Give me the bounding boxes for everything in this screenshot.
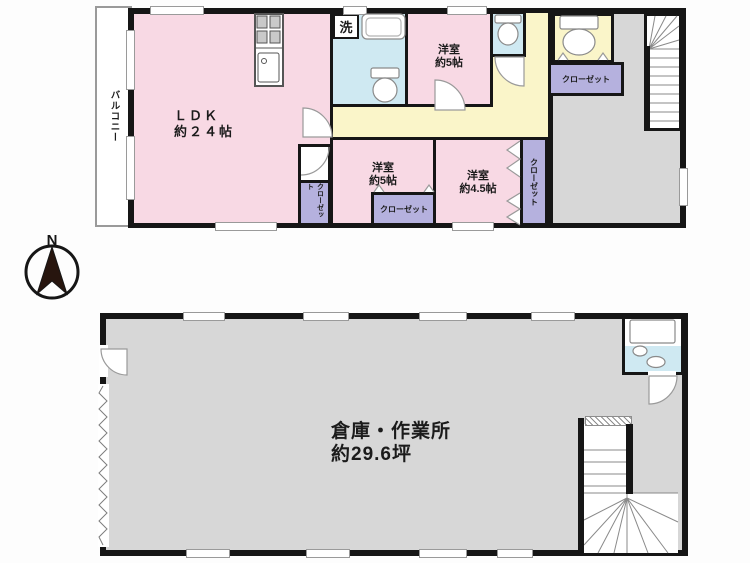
warehouse-washroom xyxy=(622,316,684,375)
closet-ldk-door xyxy=(298,144,331,183)
closet-mid: クローゼット xyxy=(371,192,437,226)
closet-ldk-label: クローゼット xyxy=(305,183,325,223)
window-mark xyxy=(452,222,494,231)
stairs-lower-run xyxy=(584,424,627,553)
floor-plan-image: バルコニー ＬＤＫ 約２４帖 洗 洋室 約5帖 洋室 約5帖 クローゼット xyxy=(0,0,750,563)
stairs-upper xyxy=(644,13,682,131)
window-mark xyxy=(447,6,487,15)
window-mark xyxy=(419,549,467,558)
room-bedroom-top-label: 洋室 約5帖 xyxy=(408,44,490,70)
window-mark xyxy=(183,312,225,321)
window-mark xyxy=(679,168,688,206)
window-mark xyxy=(150,6,204,15)
balcony-label: バルコニー xyxy=(107,90,121,143)
room-bedroom-small-label: 洋室 約4.5帖 xyxy=(436,170,520,196)
warehouse-washroom-wet-area xyxy=(625,346,681,372)
door-opening xyxy=(99,345,108,377)
warehouse-label: 倉庫・作業所 約29.6坪 xyxy=(331,421,451,467)
window-mark xyxy=(306,549,350,558)
room-ldk-label: ＬＤＫ 約２４帖 xyxy=(174,108,234,139)
closet-entry-label: クローゼット xyxy=(562,74,610,85)
shutter-strip xyxy=(98,384,109,547)
laundry-label: 洗 xyxy=(339,17,352,36)
window-mark xyxy=(531,312,575,321)
hatch-partition xyxy=(585,416,632,426)
room-bedroom-top: 洋室 約5帖 xyxy=(405,11,493,107)
laundry-box: 洗 xyxy=(333,14,359,39)
closet-entry: クローゼット xyxy=(548,62,624,96)
window-mark xyxy=(215,222,277,231)
closet-mid-label: クローゼット xyxy=(380,204,428,215)
compass-north-label: N xyxy=(47,232,58,249)
room-bedroom-mid-label: 洋室 約5帖 xyxy=(333,162,433,188)
room-bedroom-small: 洋室 約4.5帖 xyxy=(433,137,523,226)
compass-icon: N xyxy=(26,232,78,298)
window-mark xyxy=(186,549,230,558)
window-mark xyxy=(303,312,349,321)
door-opening xyxy=(648,371,676,377)
window-mark xyxy=(126,136,135,200)
closet-side: クローゼット xyxy=(520,137,548,226)
window-mark xyxy=(126,30,135,90)
window-mark xyxy=(497,549,533,558)
kitchen-counter xyxy=(254,13,284,87)
closet-side-label: クローゼット xyxy=(529,158,540,206)
window-mark xyxy=(419,312,467,321)
closet-ldk: クローゼット xyxy=(298,180,331,226)
entry-toilet-room xyxy=(552,13,614,63)
toilet-room xyxy=(490,11,526,57)
stairs-lower-winder xyxy=(627,493,678,553)
window-mark xyxy=(343,6,367,15)
